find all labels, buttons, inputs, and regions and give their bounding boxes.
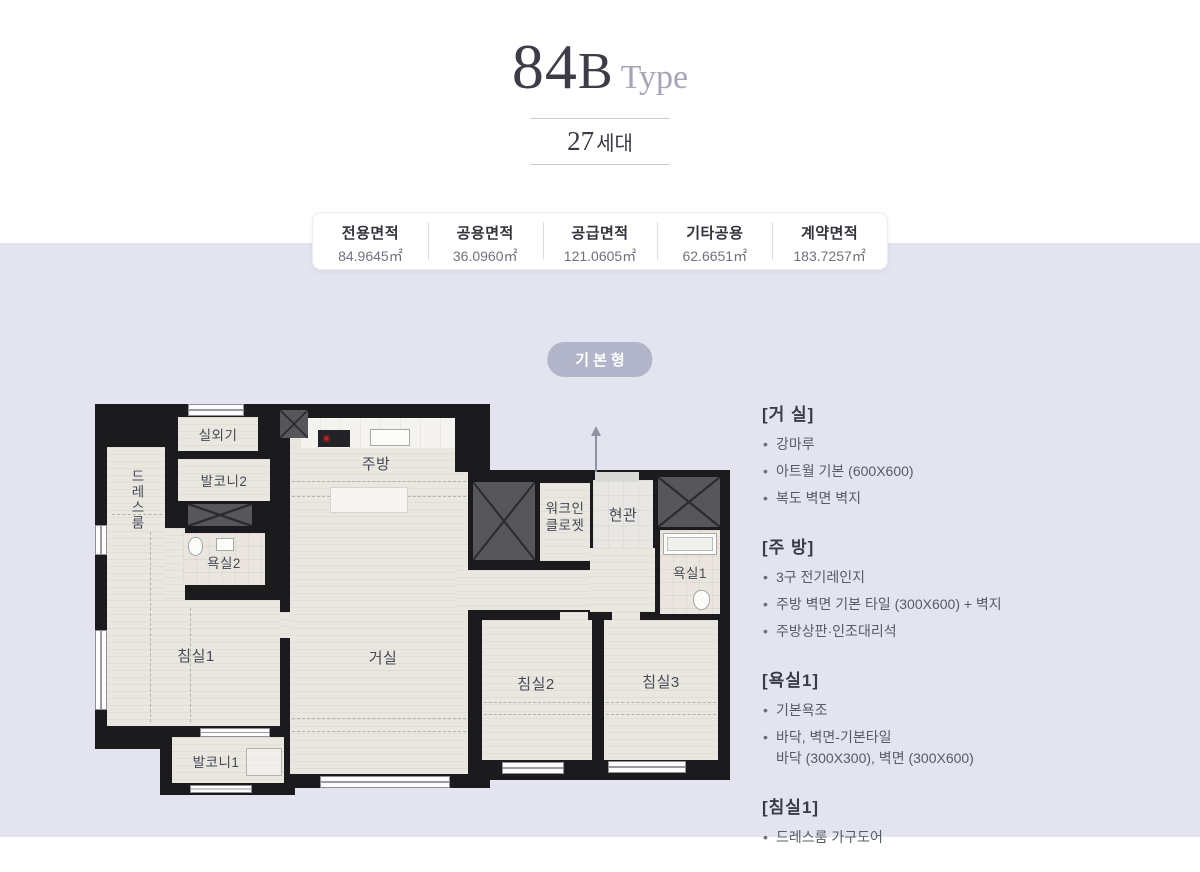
area-summary-table: 전용면적 84.9645㎡ 공용면적 36.0960㎡ 공급면적 121.060… <box>312 212 888 270</box>
plan-type-badge: 기본형 <box>547 342 652 377</box>
spec-section-living: [거 실] 강마루 아트월 기본 (600X600) 복도 벽면 벽지 <box>762 400 1062 509</box>
room-label-bath1: 욕실1 <box>650 562 730 582</box>
room-label-bedroom2: 침실2 <box>496 673 576 694</box>
room-label-entrance: 현관 <box>583 504 663 525</box>
area-value: 36.0960㎡ <box>428 246 543 266</box>
washbasin-icon <box>216 538 234 551</box>
spec-section-kitchen: [주 방] 3구 전기레인지 주방 벽면 기본 타일 (300X600) + 벽… <box>762 533 1062 642</box>
area-value: 121.0605㎡ <box>543 246 658 266</box>
household-count-word: 세대 <box>596 133 633 155</box>
spec-item: 주방 벽면 기본 타일 (300X600) + 벽지 <box>762 594 1062 615</box>
stove-icon <box>318 430 350 447</box>
guide-dash <box>484 702 590 703</box>
kitchen-island <box>330 487 408 513</box>
area-label: 전용면적 <box>313 222 428 243</box>
unit-type-letter: B <box>578 43 613 100</box>
floor-plan: 실외기 발코니2 드레스룸 욕실2 주방 워크인 클로젯 현관 욕실1 침실1 … <box>88 398 740 800</box>
wall-block <box>455 418 490 472</box>
sink-icon <box>370 429 410 446</box>
area-label: 공급면적 <box>543 222 658 243</box>
spec-section-title: [거 실] <box>762 400 1062 425</box>
spec-item: 아트월 기본 (600X600) <box>762 461 1062 482</box>
guide-dash <box>606 714 716 715</box>
window <box>608 761 686 773</box>
area-cell-supply: 공급면적 121.0605㎡ <box>543 213 658 269</box>
toilet-icon <box>693 590 710 610</box>
shaft-x-icon <box>188 504 252 526</box>
entrance-arrow-icon <box>591 426 601 436</box>
window <box>95 525 107 555</box>
hallway-floor <box>590 548 655 612</box>
guide-dash <box>292 718 466 719</box>
area-label: 계약면적 <box>772 222 887 243</box>
spec-section-bath1: [욕실1] 기본욕조 바닥, 벽면-기본타일 바닥 (300X300), 벽면 … <box>762 666 1062 769</box>
spec-item: 기본욕조 <box>762 700 1062 721</box>
room-label-dressroom: 드레스룸 <box>126 454 146 546</box>
window <box>502 762 564 774</box>
spec-item: 주방상판·인조대리석 <box>762 621 1062 642</box>
household-count-number: 27 <box>567 126 594 156</box>
page: 84BType 27세대 전용면적 84.9645㎡ 공용면적 36.0960㎡… <box>0 0 1200 837</box>
spec-section-title: [침실1] <box>762 793 1062 818</box>
room-label-kitchen: 주방 <box>336 453 416 474</box>
spec-item: 강마루 <box>762 434 1062 455</box>
corridor-floor <box>165 528 185 608</box>
door-opening <box>280 612 290 638</box>
spec-section-title: [욕실1] <box>762 666 1062 691</box>
room-label-balcony2: 발코니2 <box>179 470 269 490</box>
area-cell-other-common: 기타공용 62.6651㎡ <box>657 213 772 269</box>
guide-dash <box>606 702 716 703</box>
header-divider-top <box>530 118 670 119</box>
entrance-arrow-line <box>595 436 597 472</box>
shaft-x-icon <box>280 410 308 438</box>
bathtub-icon <box>663 533 717 555</box>
spec-panel: [거 실] 강마루 아트월 기본 (600X600) 복도 벽면 벽지 [주 방… <box>762 400 1062 872</box>
spec-item: 드레스룸 가구도어 <box>762 827 1062 848</box>
spec-section-title: [주 방] <box>762 533 1062 558</box>
area-label: 공용면적 <box>428 222 543 243</box>
door-opening <box>560 612 588 622</box>
unit-size-number: 84 <box>512 31 578 102</box>
room-label-bedroom3: 침실3 <box>621 671 701 692</box>
area-value: 84.9645㎡ <box>313 246 428 266</box>
area-cell-common: 공용면적 36.0960㎡ <box>428 213 543 269</box>
area-cell-contract: 계약면적 183.7257㎡ <box>772 213 887 269</box>
shaft-x-icon <box>473 482 535 560</box>
guide-dash <box>150 532 151 722</box>
page-title: 84BType <box>0 30 1200 104</box>
hallway-floor <box>456 570 590 610</box>
room-label-outdoor-unit: 실외기 <box>178 424 258 444</box>
unit-type-word: Type <box>621 59 689 96</box>
window <box>320 776 450 788</box>
area-label: 기타공용 <box>657 222 772 243</box>
room-label-bath2: 욕실2 <box>184 552 264 572</box>
guide-dash <box>292 481 466 482</box>
spec-item: 3구 전기레인지 <box>762 567 1062 588</box>
window <box>95 630 107 710</box>
room-label-bedroom1: 침실1 <box>156 645 236 666</box>
room-label-living: 거실 <box>343 647 423 668</box>
window <box>200 728 270 737</box>
header-divider-bottom <box>530 164 670 165</box>
area-value: 62.6651㎡ <box>657 246 772 266</box>
window <box>190 785 252 793</box>
door-opening <box>612 612 640 622</box>
guide-dash <box>484 714 590 715</box>
spec-section-bedroom1: [침실1] 드레스룸 가구도어 <box>762 793 1062 848</box>
area-value: 183.7257㎡ <box>772 246 887 266</box>
window <box>188 404 244 416</box>
spec-item: 복도 벽면 벽지 <box>762 488 1062 509</box>
entrance-threshold <box>595 472 639 482</box>
shaft-x-icon <box>658 477 720 527</box>
household-count: 27세대 <box>0 126 1200 157</box>
area-cell-exclusive: 전용면적 84.9645㎡ <box>313 213 428 269</box>
spec-item: 바닥, 벽면-기본타일 바닥 (300X300), 벽면 (300X600) <box>762 727 1062 769</box>
guide-dash <box>292 731 466 732</box>
room-label-balcony1: 발코니1 <box>176 751 256 771</box>
